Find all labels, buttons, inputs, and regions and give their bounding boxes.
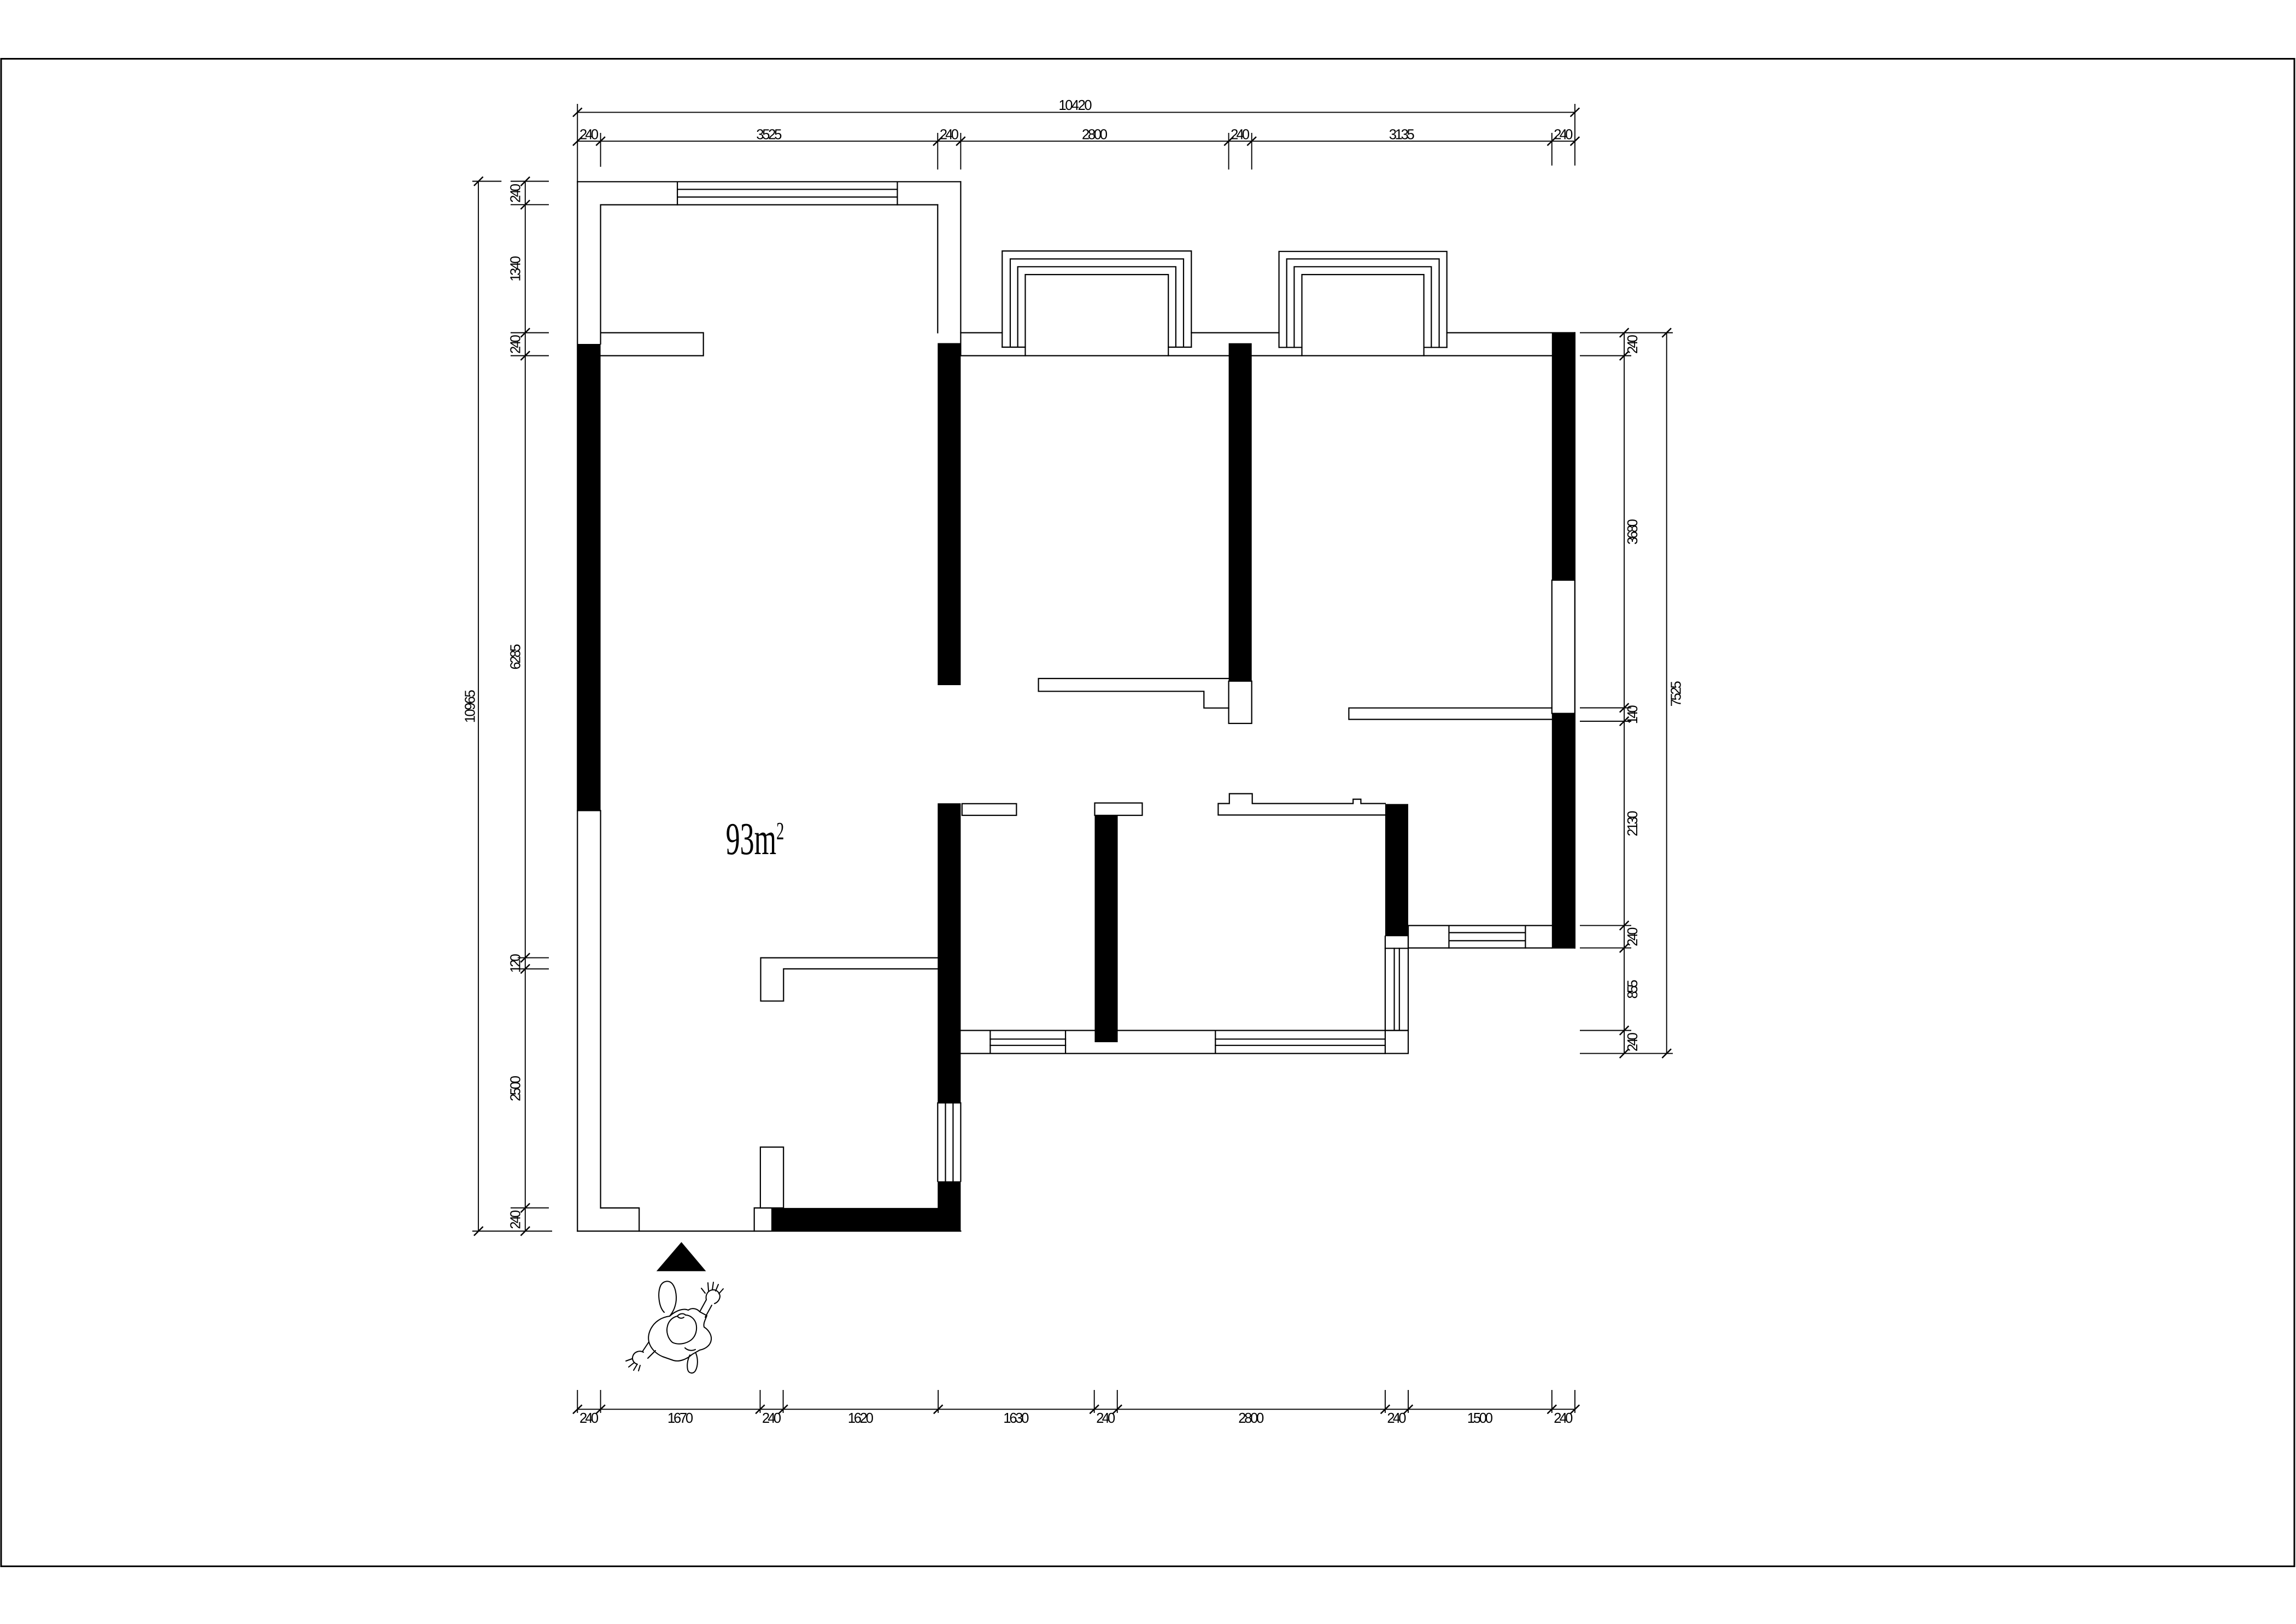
svg-text:855: 855 — [1625, 980, 1641, 999]
svg-text:240: 240 — [1387, 1411, 1406, 1426]
svg-text:2800: 2800 — [1082, 127, 1108, 143]
svg-text:240: 240 — [1554, 127, 1573, 143]
svg-text:240: 240 — [579, 1411, 599, 1426]
svg-text:240: 240 — [508, 335, 524, 354]
svg-text:240: 240 — [1625, 335, 1641, 354]
svg-text:3525: 3525 — [756, 127, 782, 143]
svg-text:1620: 1620 — [848, 1411, 874, 1426]
svg-text:1670: 1670 — [667, 1411, 693, 1426]
svg-text:240: 240 — [1554, 1411, 1573, 1426]
svg-text:240: 240 — [1625, 927, 1641, 947]
svg-text:240: 240 — [1096, 1411, 1115, 1426]
svg-text:7525: 7525 — [1669, 681, 1684, 706]
svg-text:1340: 1340 — [508, 256, 524, 282]
svg-text:240: 240 — [508, 1210, 524, 1229]
svg-text:10965: 10965 — [463, 690, 478, 723]
svg-text:240: 240 — [762, 1411, 781, 1426]
svg-text:2800: 2800 — [1238, 1411, 1264, 1426]
svg-text:2500: 2500 — [508, 1076, 524, 1101]
svg-text:6285: 6285 — [508, 644, 524, 670]
svg-text:2130: 2130 — [1625, 811, 1641, 837]
svg-text:120: 120 — [508, 954, 524, 973]
svg-text:3135: 3135 — [1389, 127, 1415, 143]
svg-text:240: 240 — [1625, 1032, 1641, 1051]
svg-text:1500: 1500 — [1467, 1411, 1493, 1426]
svg-text:240: 240 — [940, 127, 959, 143]
svg-text:10420: 10420 — [1059, 98, 1092, 113]
svg-text:240: 240 — [508, 184, 524, 203]
svg-text:240: 240 — [1231, 127, 1250, 143]
svg-text:93m2: 93m2 — [726, 814, 784, 865]
svg-text:3680: 3680 — [1625, 519, 1641, 545]
svg-text:240: 240 — [579, 127, 599, 143]
svg-text:140: 140 — [1625, 705, 1641, 724]
svg-text:1630: 1630 — [1003, 1411, 1029, 1426]
